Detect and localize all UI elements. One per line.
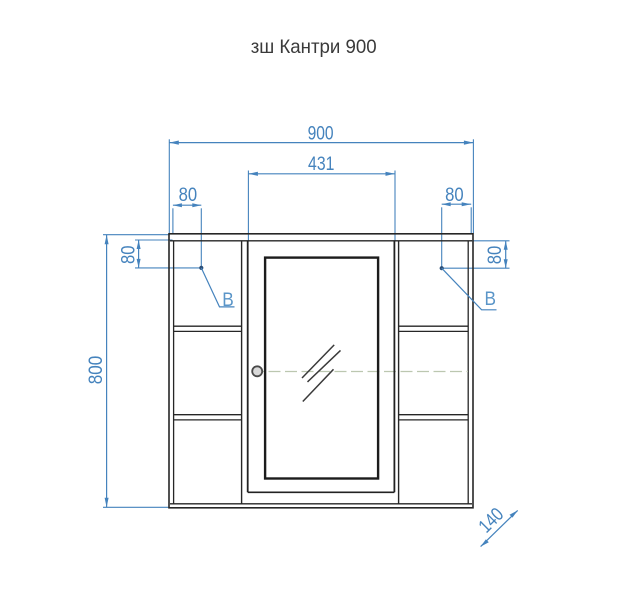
svg-text:80: 80 (119, 246, 140, 264)
svg-text:80: 80 (485, 246, 506, 265)
svg-text:B: B (485, 289, 497, 310)
svg-text:900: 900 (308, 123, 334, 144)
svg-text:431: 431 (308, 154, 334, 175)
svg-text:80: 80 (445, 185, 464, 206)
svg-text:80: 80 (179, 185, 198, 206)
svg-text:зш Кантри 900: зш Кантри 900 (251, 36, 377, 58)
svg-text:B: B (222, 290, 234, 311)
svg-text:800: 800 (86, 356, 107, 385)
